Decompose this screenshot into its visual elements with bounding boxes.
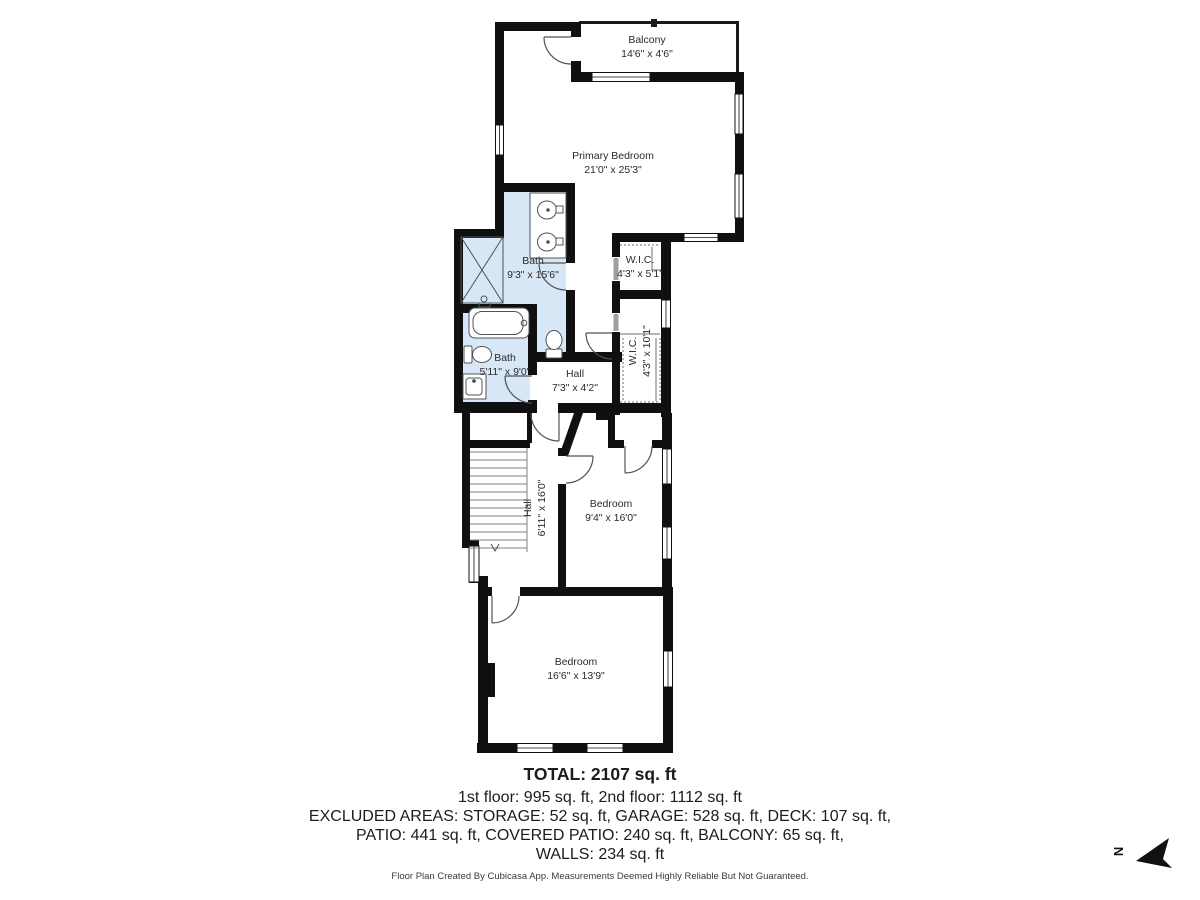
room-dims: 4'3" x 10'1" (641, 325, 655, 377)
room-label-wic-large: W.I.C. 4'3" x 10'1" (627, 325, 655, 377)
stairs (470, 448, 527, 552)
compass-north-label: N (1111, 847, 1126, 856)
room-name: Bath (507, 255, 559, 269)
double-vanity (530, 193, 566, 258)
room-label-hall-small: Hall 7'3" x 4'2" (552, 368, 598, 396)
room-label-bedroom-mid: Bedroom 9'4" x 16'0" (585, 498, 637, 526)
room-name: Bedroom (585, 498, 637, 512)
room-name: Balcony (621, 34, 673, 48)
room-name: Bedroom (547, 656, 605, 670)
room-label-wic-small: W.I.C. 4'3" x 5'1" (617, 254, 663, 282)
room-label-small-bath: Bath 5'11" x 9'0" (480, 352, 531, 380)
room-dims: 16'6" x 13'9" (547, 670, 605, 684)
excluded-areas-line3: WALLS: 234 sq. ft (0, 846, 1200, 864)
room-dims: 14'6" x 4'6" (621, 48, 673, 62)
room-label-primary-bedroom: Primary Bedroom 21'0" x 25'3" (572, 150, 654, 178)
room-dims: 21'0" x 25'3" (572, 164, 654, 178)
room-dims: 5'11" x 9'0" (480, 366, 531, 380)
floor-areas-text: 1st floor: 995 sq. ft, 2nd floor: 1112 s… (0, 789, 1200, 807)
total-area-text: TOTAL: 2107 sq. ft (0, 764, 1200, 785)
room-name: Hall (552, 368, 598, 382)
compass: N (1105, 830, 1190, 875)
disclaimer-text: Floor Plan Created By Cubicasa App. Meas… (0, 871, 1200, 882)
room-name: W.I.C. (617, 254, 663, 268)
room-dims: 6'11" x 16'0" (536, 480, 550, 537)
room-dims: 9'4" x 16'0" (585, 512, 637, 526)
room-label-bedroom-bottom: Bedroom 16'6" x 13'9" (547, 656, 605, 684)
room-label-hall-large: Hall 6'11" x 16'0" (522, 480, 550, 537)
room-name: W.I.C. (627, 325, 641, 377)
excluded-areas-line1: EXCLUDED AREAS: STORAGE: 52 sq. ft, GARA… (0, 808, 1200, 826)
room-name: Bath (480, 352, 531, 366)
floorplan-canvas: Balcony 14'6" x 4'6" Primary Bedroom 21'… (0, 0, 1200, 900)
room-dims: 4'3" x 5'1" (617, 268, 663, 282)
room-name: Hall (522, 480, 536, 537)
excluded-areas-line2: PATIO: 441 sq. ft, COVERED PATIO: 240 sq… (0, 827, 1200, 845)
room-dims: 9'3" x 15'6" (507, 269, 559, 283)
room-label-balcony: Balcony 14'6" x 4'6" (621, 34, 673, 62)
room-name: Primary Bedroom (572, 150, 654, 164)
room-label-primary-bath: Bath 9'3" x 15'6" (507, 255, 559, 283)
room-dims: 7'3" x 4'2" (552, 382, 598, 396)
bathtub (469, 308, 529, 338)
toilet (546, 331, 562, 359)
